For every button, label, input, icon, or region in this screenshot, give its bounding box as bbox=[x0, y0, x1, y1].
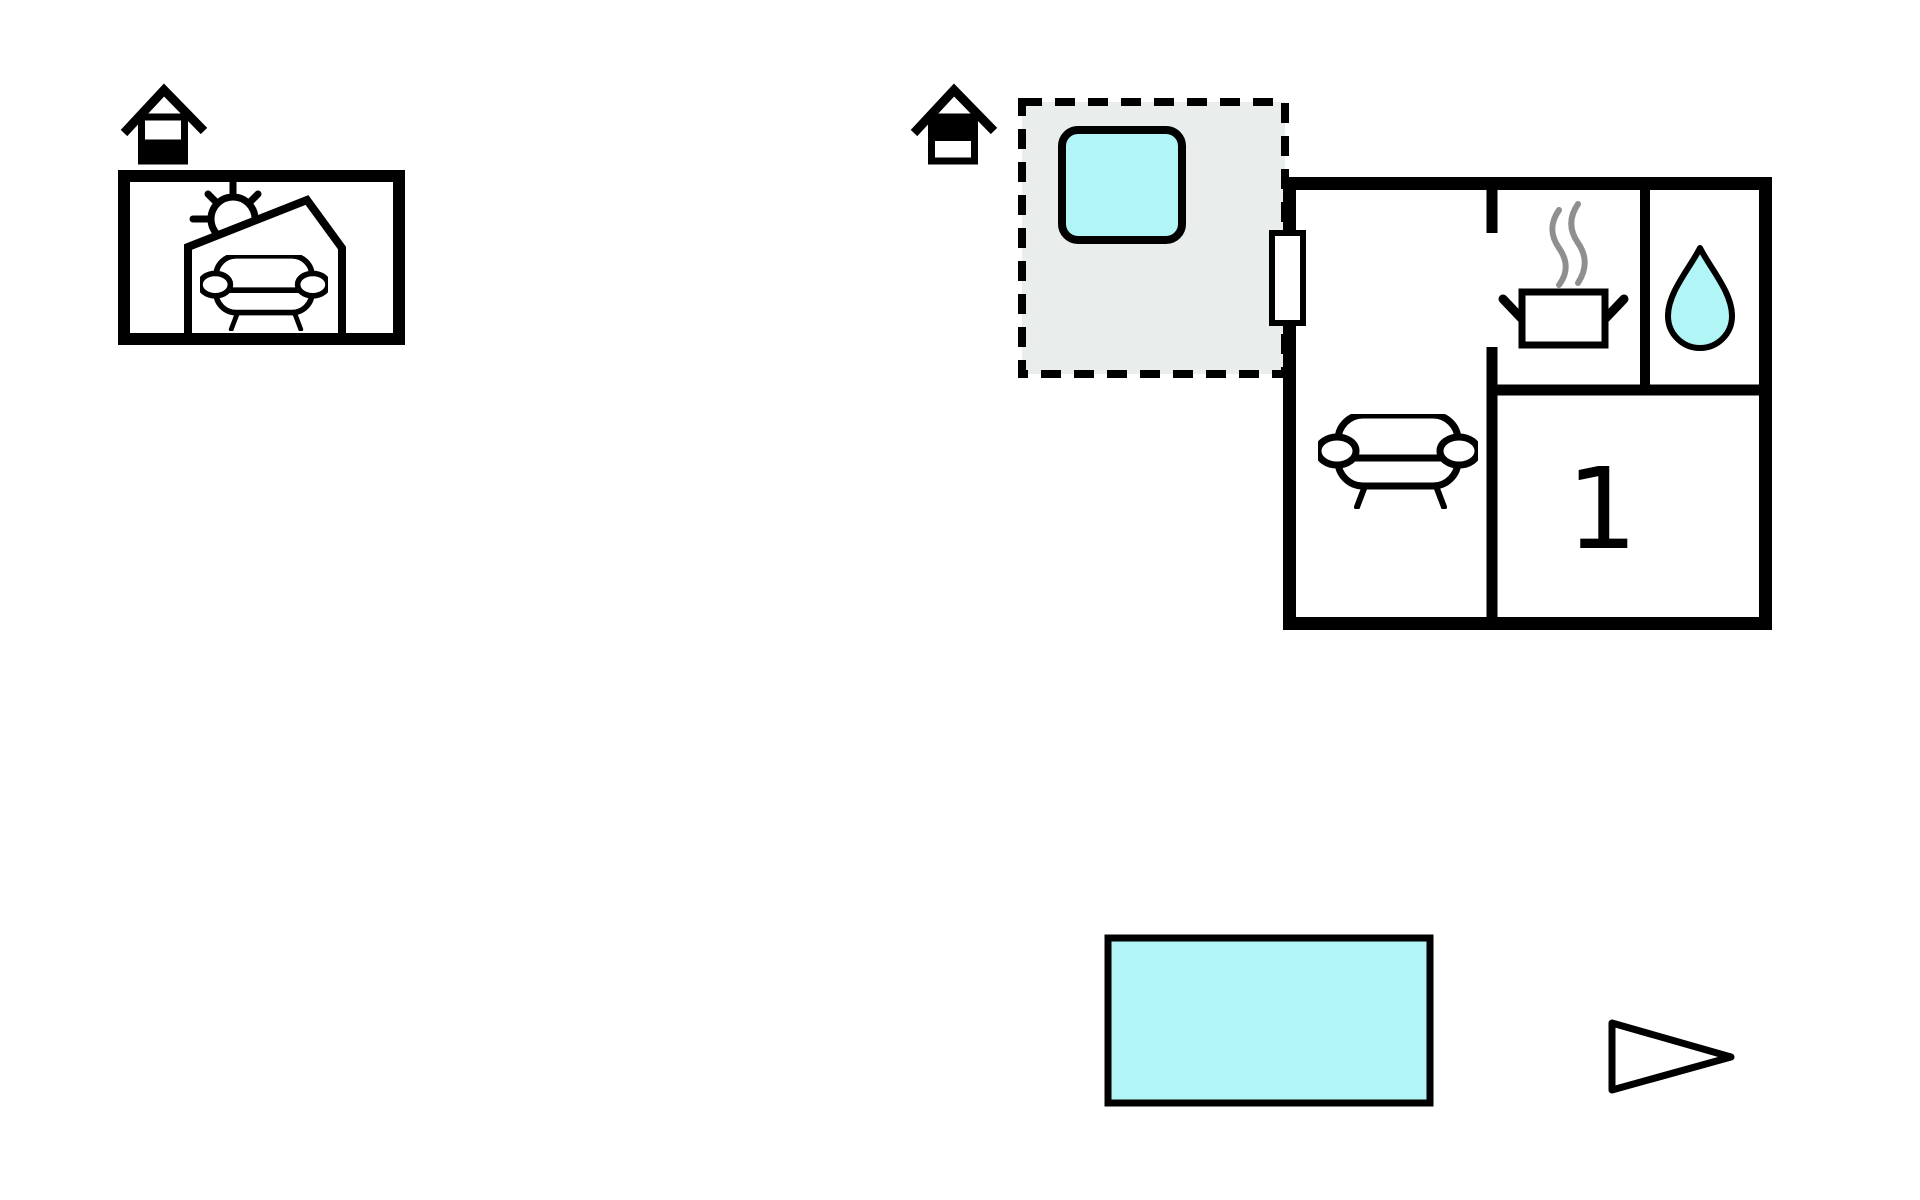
floor-plan-canvas: 1 bbox=[0, 0, 1920, 1200]
outdoor-features bbox=[1108, 938, 1731, 1103]
house-level-icon-lower-filled bbox=[124, 90, 204, 165]
bedroom: 1 bbox=[1566, 445, 1637, 575]
main-building: 1 bbox=[914, 90, 1766, 624]
house-level-filled-band bbox=[928, 117, 978, 141]
house-level-filled-band bbox=[138, 140, 188, 165]
house-level-icon-upper-filled bbox=[914, 90, 994, 161]
direction-arrow-icon bbox=[1612, 1023, 1731, 1090]
swimming-pool bbox=[1108, 938, 1430, 1103]
terrace bbox=[1022, 102, 1285, 374]
bedroom-number-label: 1 bbox=[1566, 445, 1637, 575]
cooking-pot-icon bbox=[1503, 292, 1624, 345]
floor-plan-page: 1 bbox=[0, 0, 1920, 1200]
outer-walls bbox=[1290, 184, 1766, 624]
entrance-door bbox=[1272, 233, 1303, 323]
annex-building bbox=[124, 90, 399, 339]
hot-tub-icon bbox=[1062, 130, 1182, 240]
floorplan: 1 bbox=[1272, 184, 1766, 624]
